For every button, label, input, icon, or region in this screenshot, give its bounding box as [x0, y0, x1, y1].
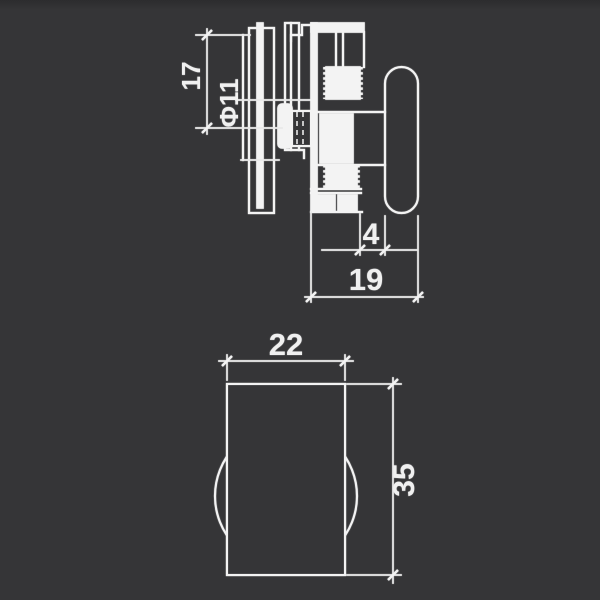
bolt-washer [278, 104, 292, 148]
lower-thread-block [326, 165, 357, 189]
technical-drawing: 17 Φ11 4 19 [0, 0, 600, 600]
upper-thread-block [326, 67, 360, 99]
dimension-35: 35 [347, 378, 421, 583]
clamp-plate-core [257, 23, 263, 208]
bracket-top-cap [311, 23, 364, 32]
roller-wheel-side [385, 67, 418, 213]
drawing-canvas: 17 Φ11 4 19 [0, 0, 600, 600]
nut-right [338, 195, 357, 211]
bracket-back-plate [311, 23, 317, 212]
dim-22-label: 22 [269, 327, 303, 362]
dimension-22: 22 [219, 327, 353, 380]
dim-35-label: 35 [388, 463, 421, 496]
side-view-assembly: 17 Φ11 4 19 [176, 23, 423, 302]
bolt-shaft [292, 111, 311, 146]
front-view-roller: 22 35 [215, 327, 421, 583]
axle-boss [320, 114, 353, 163]
nut-left [314, 195, 335, 211]
dim-17-label: 17 [176, 62, 206, 91]
dimension-4: 4 [322, 214, 417, 255]
dim-4-label: 4 [363, 218, 380, 251]
roller-body-front [227, 384, 345, 575]
dim-dia11-label: Φ11 [214, 79, 244, 128]
dim-19-label: 19 [349, 262, 383, 297]
